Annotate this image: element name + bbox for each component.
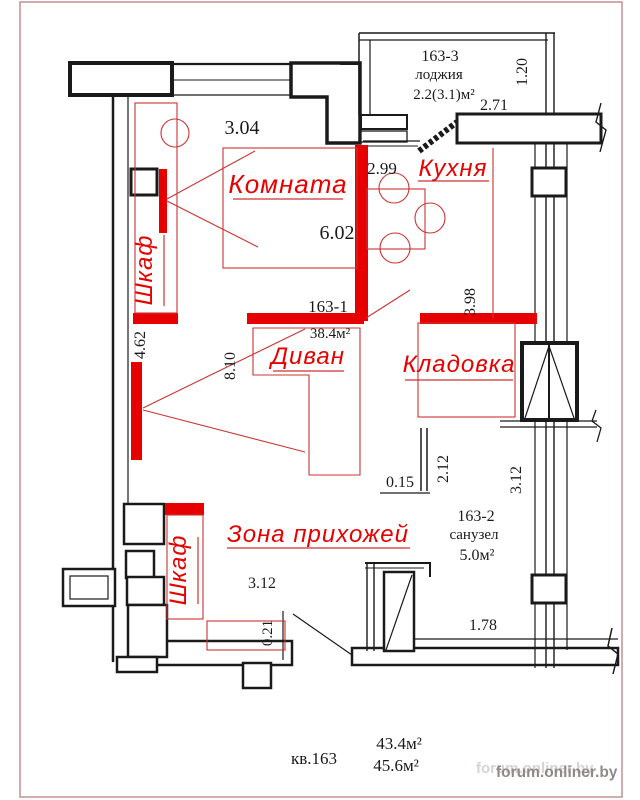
west-niche-outer [63,569,115,606]
chevron-top-b [167,201,258,247]
room-name-163-2: санузел [449,527,499,543]
wall-pier-mid [291,63,360,143]
red-wall-hall-closet [165,503,204,515]
stair-block-1 [124,504,164,544]
label-kuhnya: Кухня [419,155,488,182]
footer-apartment: кв.163 [291,749,337,768]
stair-block-3 [127,577,164,605]
dim-2-12: 2.12 [435,455,452,483]
shaft-block-upper [532,168,566,196]
floor-plan-page: 3.042.996.02163-138.4м²163-3лоджия2.2(3.… [0,0,640,800]
dim-4-62: 4.62 [132,331,149,359]
label-shkaf-top: Шкаф [131,235,158,306]
kitchen-table-outline [367,189,425,249]
room-area-163-3: 2.2(3.1)м² [413,87,475,103]
dim-3-12-h: 3.12 [248,575,276,592]
dim-1-78: 1.78 [469,617,497,634]
dim-8-10: 8.10 [222,352,239,380]
corridor-break-mark [592,410,601,442]
label-divan: Диван [268,343,345,370]
dim-3-12-v: 3.12 [508,466,525,494]
shaft-block-lower [532,575,566,603]
dim-0-15: 0.15 [386,474,414,491]
dim-2-71: 2.71 [480,97,508,114]
label-komnata: Комната [228,169,347,199]
chevron-bottom-b [143,410,305,452]
room-id-163-3: 163-3 [421,48,458,65]
footer-area-2: 45.6м² [373,756,419,775]
room-id-163-2: 163-2 [457,508,494,525]
red-wall-closet-top [159,169,167,233]
room-area-163-1: 38.4м² [310,326,351,342]
entry-door-swing [293,614,352,655]
stair-block-4 [128,605,167,657]
dim-3-04: 3.04 [225,117,260,139]
beam-lintel [457,114,601,143]
dim-6-02: 6.02 [320,222,355,244]
bottom-wall-step [243,663,271,688]
wall-pier-topleft [70,63,172,95]
red-wall-h-left [133,313,178,324]
room-id-163-1: 163-1 [308,297,348,316]
dim-1-20: 1.20 [514,58,531,86]
kitchen-window-sill-lower [361,131,407,142]
room-area-163-2: 5.0м² [460,547,495,564]
footer-area-1: 43.4м² [376,734,422,753]
label-kladovka: Кладовка [403,351,516,378]
room-zone-outline [223,148,357,268]
kitchen-chair-3 [380,233,410,263]
dim-0-21: 0.21 [260,620,276,646]
floor-plan-svg: 3.042.996.02163-138.4м²163-3лоджия2.2(3.… [0,0,640,800]
red-wall-west [131,362,142,460]
stair-block-2 [126,551,154,578]
room-name-163-3: лоджия [415,67,463,83]
label-shkaf-bottom: Шкаф [165,535,192,606]
kitchen-chair-2 [415,203,445,233]
red-door-swing [366,290,410,318]
stair-block-5 [117,657,157,672]
dim-2-99: 2.99 [367,159,397,178]
ceiling-circle [161,119,189,147]
balcony-door-leaf [419,122,457,151]
kitchen-window-sill-upper [361,115,407,129]
dim-3-98: 3.98 [462,288,479,316]
label-zona-prihozhey: Зона прихожей [227,521,409,548]
